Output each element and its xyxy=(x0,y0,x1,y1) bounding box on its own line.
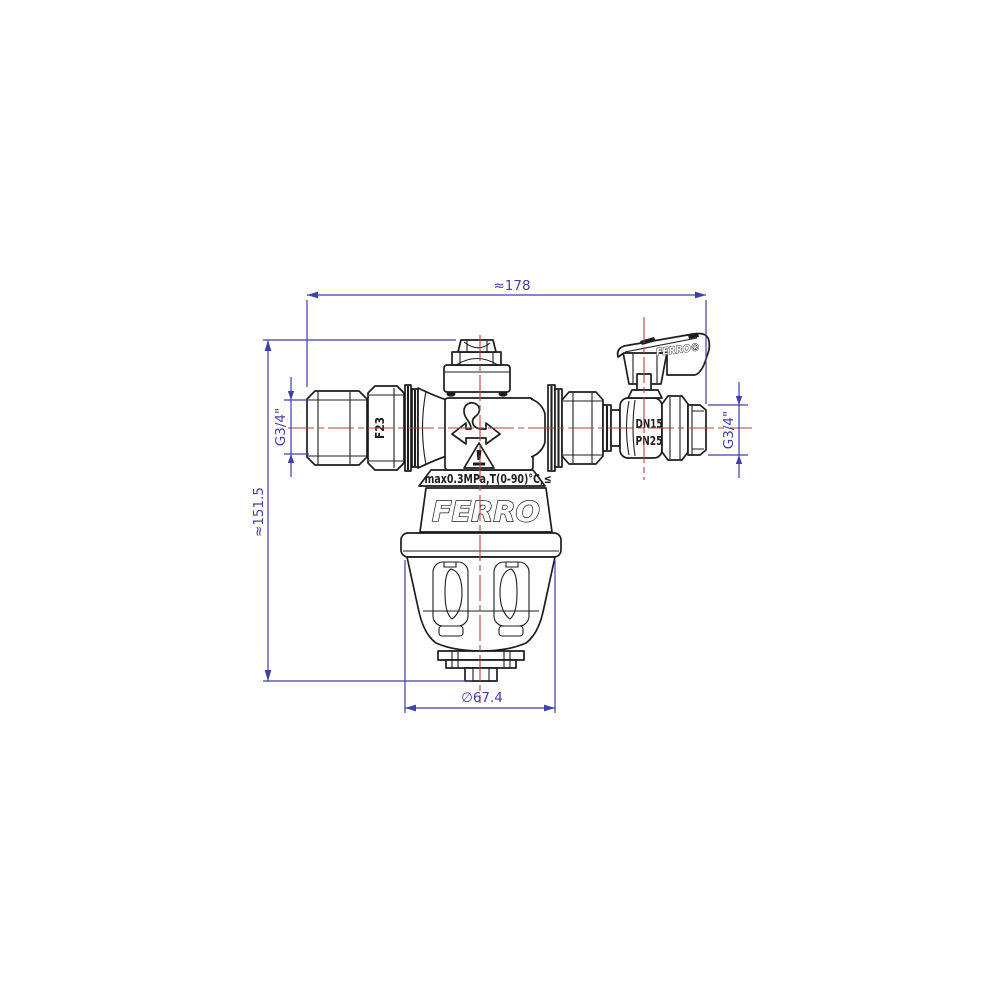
filter-bowl xyxy=(407,557,555,681)
vent-top-cap xyxy=(458,340,496,352)
valve-male-thread xyxy=(688,405,706,455)
vent-gasket xyxy=(499,391,508,396)
body-spec-marking: max0.3MPa,T(0-90)°C,≤ xyxy=(425,472,552,486)
valve-packing xyxy=(628,390,662,398)
dim-bowl-diameter-label: ∅67.4 xyxy=(461,690,503,706)
bowl-flange xyxy=(401,533,561,557)
vent-gasket xyxy=(447,391,456,396)
body-brand-logo: FERRO xyxy=(432,495,540,528)
valve-dn-marking: DN15 xyxy=(636,416,663,431)
dim-overall-width-label: ≈178 xyxy=(493,278,530,294)
bowl-cup xyxy=(407,557,555,651)
valve-pn-marking: PN25 xyxy=(636,433,663,448)
ball-valve: FERRO® DN15 PN25 xyxy=(618,333,710,460)
dim-outlet-thread: G3/4" xyxy=(708,382,748,478)
dim-overall-height-label: ≈151.5 xyxy=(251,487,267,537)
filter-assembly: FERRO® DN15 PN25 max0.3MPa,T(0-90)°C,≤ F… xyxy=(307,333,709,681)
dim-outlet-thread-label: G3/4" xyxy=(721,411,737,449)
dim-inlet-thread-label: G3/4" xyxy=(273,408,289,446)
bowl-bottom-flange xyxy=(446,660,516,668)
technical-drawing: FERRO® DN15 PN25 max0.3MPa,T(0-90)°C,≤ F… xyxy=(0,0,1000,1000)
drain-plug xyxy=(465,668,497,681)
dim-inlet-thread: G3/4" xyxy=(273,377,309,477)
vent-base-cap xyxy=(444,365,510,392)
air-vent-cap xyxy=(444,340,510,397)
bowl-bottom-flange xyxy=(438,651,524,660)
